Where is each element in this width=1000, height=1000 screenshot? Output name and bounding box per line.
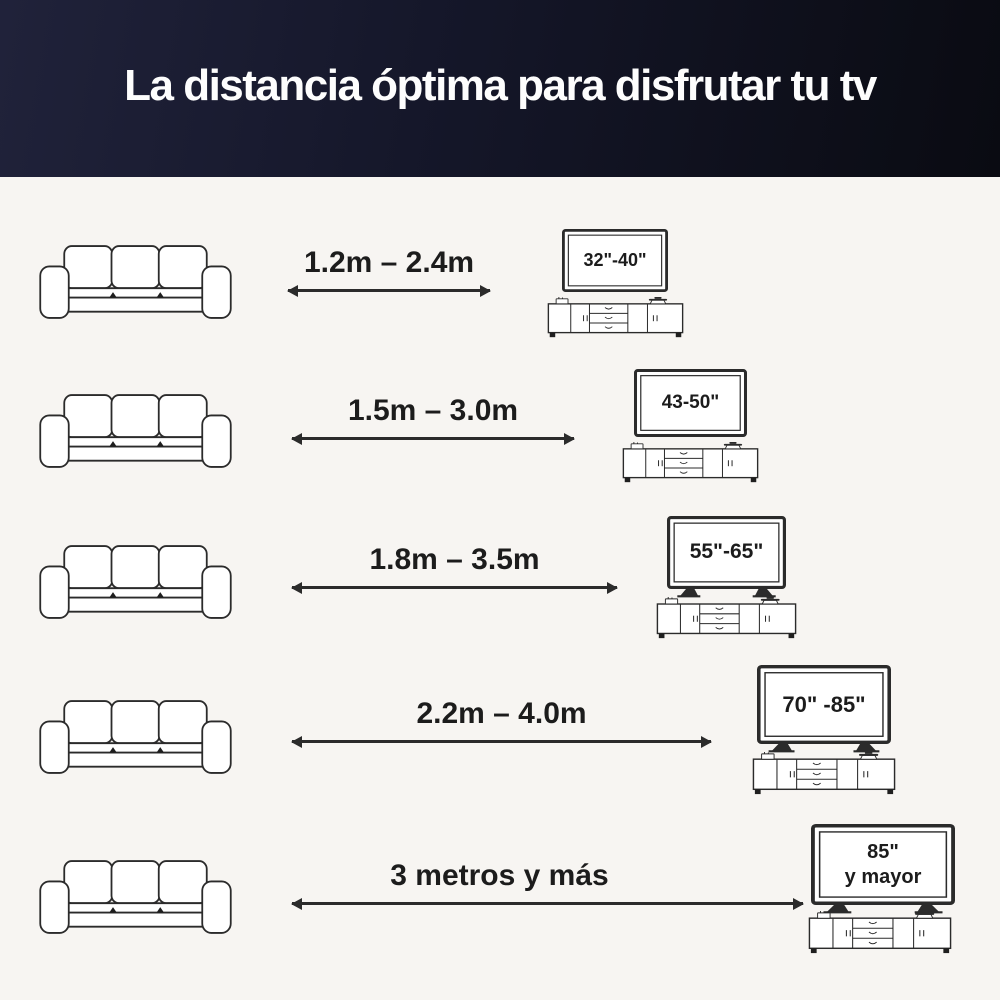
sofa-icon (38, 543, 233, 621)
distance-group: 1.2m – 2.4m (288, 246, 490, 292)
infographic-canvas: La distancia óptima para disfrutar tu tv… (0, 0, 1000, 1000)
tv-size-label: 32"-40" (562, 229, 668, 292)
tv-stand-icon (622, 442, 759, 484)
sofa-icon (38, 392, 233, 470)
distance-label: 1.2m – 2.4m (304, 246, 474, 280)
distance-group: 2.2m – 4.0m (292, 697, 711, 743)
distance-label: 1.8m – 3.5m (369, 543, 539, 577)
tv-size-label: 55"-65" (667, 516, 786, 589)
tv-stand-icon (808, 911, 952, 955)
tv-stand-icon (752, 752, 896, 796)
tv-size-label: 85" y mayor (811, 824, 955, 905)
distance-group: 1.8m – 3.5m (292, 543, 617, 589)
distance-group: 1.5m – 3.0m (292, 394, 574, 440)
double-headed-arrow-icon (292, 902, 803, 905)
distance-label: 3 metros y más (390, 859, 608, 893)
sofa-icon (38, 858, 233, 936)
header-banner: La distancia óptima para disfrutar tu tv (0, 0, 1000, 177)
sofa-icon (38, 698, 233, 776)
distance-group: 3 metros y más (292, 859, 803, 905)
double-headed-arrow-icon (292, 437, 574, 440)
double-headed-arrow-icon (288, 289, 490, 292)
double-headed-arrow-icon (292, 740, 711, 743)
double-headed-arrow-icon (292, 586, 617, 589)
tv-size-label: 70" -85" (757, 665, 891, 744)
distance-label: 1.5m – 3.0m (348, 394, 518, 428)
tv-stand-icon (656, 597, 797, 640)
sofa-icon (38, 243, 233, 321)
distance-label: 2.2m – 4.0m (416, 697, 586, 731)
tv-stand-icon (547, 297, 684, 339)
tv-size-label: 43-50" (634, 369, 747, 437)
page-title: La distancia óptima para disfrutar tu tv (124, 61, 876, 117)
